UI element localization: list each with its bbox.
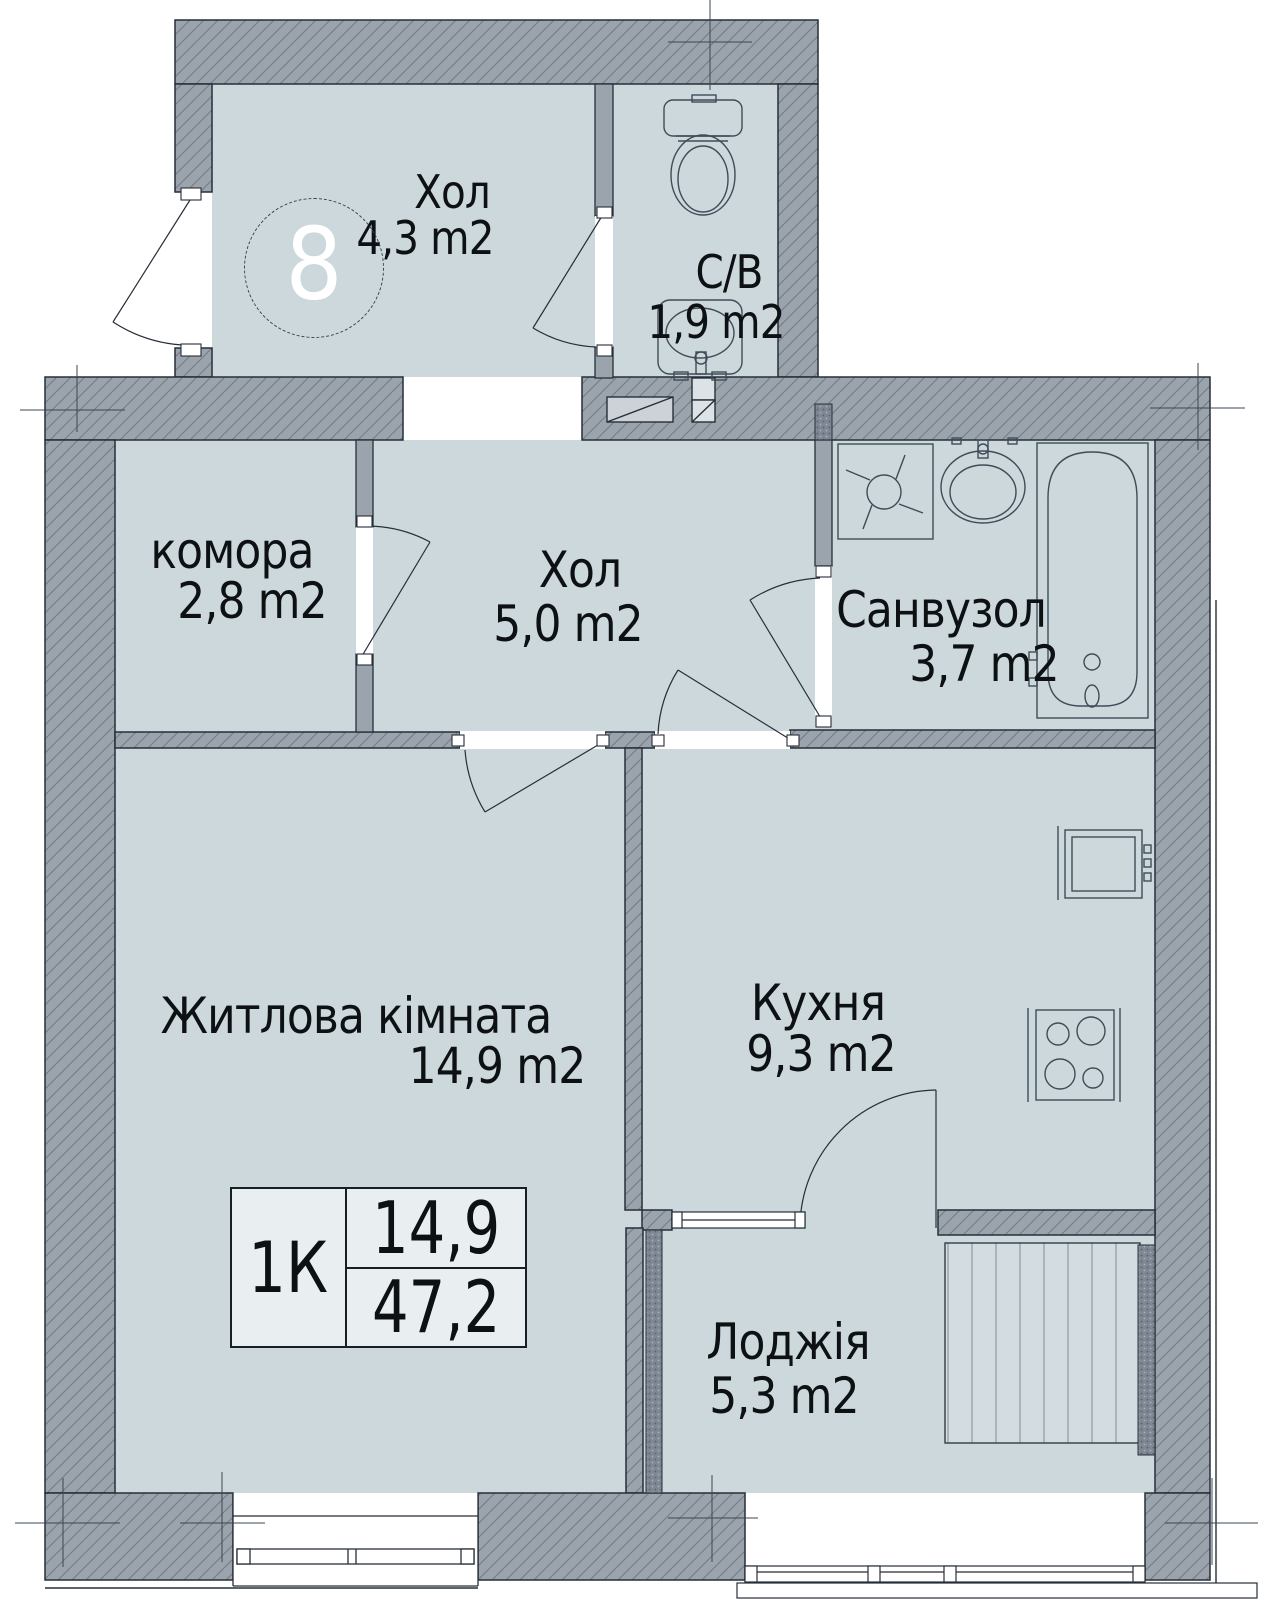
wall-balcony-pier-right [938, 1210, 1155, 1235]
room-label-living-name: Житлова кімната [161, 991, 552, 1041]
wall-mid-left [115, 732, 460, 748]
room-label-hall-name: Хол [539, 545, 622, 595]
wall-bathroom-bottom [790, 730, 1155, 748]
stamp-type-label: 1К [248, 1233, 328, 1303]
living-room-window [233, 1493, 478, 1586]
insulation-loggia-left [646, 1230, 662, 1493]
wall-bottom-pier-left [45, 1493, 233, 1580]
unit-number-badge: 8 [244, 198, 384, 338]
wall-balcony-pier-left [642, 1210, 672, 1230]
floor-plan: Хол 4,3 m2 С/В 1,9 m2 комора 2,8 m2 Хол … [0, 0, 1280, 1600]
unit-stamp: 1К 14,9 47,2 [230, 1187, 527, 1348]
partition-bathroom [815, 440, 832, 566]
wall-main-top-left [45, 377, 403, 440]
room-label-kitchen-area: 9,3 m2 [746, 1029, 896, 1079]
room-label-kitchen-name: Кухня [751, 978, 885, 1028]
wall-right [1155, 440, 1210, 1493]
room-label-living-area: 14,9 m2 [409, 1041, 586, 1091]
wall-bottom-pier-mid [478, 1493, 745, 1580]
wall-loggia-divider [626, 1228, 643, 1493]
partition-storage-upper [356, 440, 373, 527]
wall-vestibule-left-upper [175, 84, 212, 192]
room-label-loggia-name: Лоджія [706, 1317, 869, 1367]
loggia-floor-hatch [945, 1243, 1140, 1443]
room-label-loggia-area: 5,3 m2 [709, 1371, 859, 1421]
kitchen-balcony-window [672, 1212, 805, 1228]
stamp-total-area: 47,2 [372, 1271, 500, 1343]
partition-wc-upper [595, 84, 613, 216]
room-label-bathroom-area: 3,7 m2 [909, 639, 1059, 689]
room-label-storage-name: комора [150, 526, 313, 576]
partition-storage-lower [356, 654, 373, 732]
stamp-total-area-cell: 47,2 [347, 1269, 525, 1347]
wall-left [45, 440, 115, 1493]
room-label-wc-name: С/В [695, 249, 762, 295]
insulation-bathroom-top [815, 404, 832, 440]
wall-kitchen-living [625, 748, 642, 1210]
wall-bottom-pier-right [1145, 1493, 1210, 1580]
room-label-storage-area: 2,8 m2 [177, 576, 327, 626]
wall-mid-t-block [605, 732, 655, 748]
room-label-vestibule-name: Хол [414, 169, 490, 215]
room-label-bathroom-name: Санвузол [836, 585, 1046, 635]
stamp-living-area: 14,9 [372, 1192, 500, 1264]
stamp-living-area-cell: 14,9 [347, 1189, 525, 1269]
wall-main-top-right [582, 377, 1210, 440]
room-label-wc-area: 1,9 m2 [647, 299, 784, 345]
unit-number: 8 [285, 205, 342, 322]
stamp-type-cell: 1К [232, 1189, 347, 1346]
floor-plan-drawing [0, 0, 1280, 1600]
vent-shaft2-icon [692, 378, 715, 400]
insulation-loggia-right [1138, 1245, 1155, 1455]
wall-vestibule-top [175, 20, 818, 84]
room-label-hall-area: 5,0 m2 [493, 599, 643, 649]
